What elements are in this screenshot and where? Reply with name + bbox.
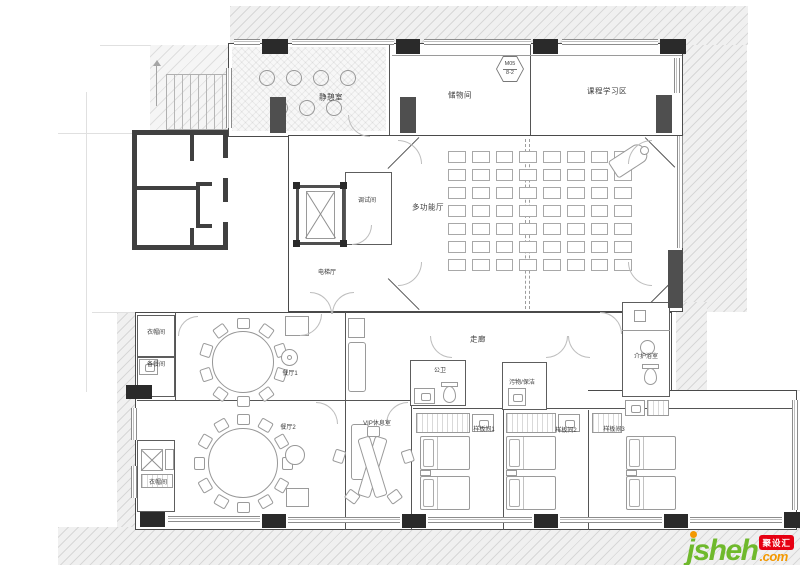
wall	[530, 45, 531, 135]
stair-treads	[166, 74, 230, 130]
annex-door-gap	[222, 202, 229, 222]
wc-sink	[414, 388, 435, 404]
column	[402, 514, 426, 528]
hall-seat	[519, 259, 537, 271]
hall-seat	[496, 259, 514, 271]
care-bath-shelf	[634, 310, 646, 322]
care-bath-counter	[647, 400, 669, 416]
room-label-storage: 储物间	[448, 91, 472, 99]
hall-seat	[472, 223, 490, 235]
room-label-cloak-bottom: 衣帽间	[149, 480, 167, 486]
room-label-care-bath: 介护浴室	[634, 354, 658, 360]
hall-seat	[496, 169, 514, 181]
hall-seat	[519, 151, 537, 163]
stool	[259, 70, 275, 86]
hatch-area-right-mid	[676, 302, 707, 392]
hall-seat	[543, 259, 561, 271]
room-label-cleaning: 污物/保洁	[509, 380, 535, 386]
hall-seat	[614, 223, 632, 235]
wall	[389, 45, 390, 135]
hall-seat	[448, 223, 466, 235]
hall-seat	[591, 151, 609, 163]
column	[262, 514, 286, 528]
mop-sink	[508, 388, 526, 406]
sample1-bed	[420, 436, 470, 470]
hall-seat	[543, 169, 561, 181]
hall-seat	[591, 169, 609, 181]
annex-wall-bracket	[196, 182, 200, 228]
hall-seat	[472, 169, 490, 181]
chair	[237, 318, 250, 329]
wall	[137, 400, 411, 401]
care-bath-divider	[622, 330, 670, 331]
hall-seat	[448, 187, 466, 199]
pier	[270, 97, 286, 133]
logo-tld: .com	[759, 550, 787, 563]
hall-seat	[567, 151, 585, 163]
hall-seat	[472, 241, 490, 253]
door-tag-line2: 8-2	[506, 70, 514, 77]
pier	[656, 95, 672, 133]
room-label-multi-hall: 多功能厅	[412, 203, 444, 211]
annex-wall-stub2	[190, 228, 194, 248]
column	[340, 182, 347, 189]
pier	[400, 97, 416, 133]
room-label-cloak-top: 衣帽间	[147, 330, 165, 336]
stool	[299, 100, 315, 116]
dining1-floor-lamp-dot	[287, 355, 292, 360]
hall-seat	[591, 241, 609, 253]
annex-door-gap	[222, 158, 229, 178]
wall	[503, 410, 504, 530]
wall	[588, 410, 589, 530]
chair	[237, 414, 250, 425]
sample2-counter	[506, 413, 556, 433]
annex-wall	[137, 186, 199, 190]
grid-line	[86, 92, 87, 392]
window	[424, 39, 531, 45]
column	[340, 240, 347, 247]
window	[690, 517, 782, 523]
sample3-bed	[626, 476, 676, 510]
room-label-dining1: 餐厅1	[282, 371, 297, 377]
dining2-cabinet	[286, 488, 309, 507]
hall-seat	[543, 151, 561, 163]
stair-landing-line	[166, 74, 167, 130]
cloak-shelf	[165, 449, 174, 470]
room-label-corridor: 走廊	[470, 335, 486, 343]
inner-wall-line	[392, 55, 682, 56]
room-label-public-wc: 公卫	[434, 368, 446, 374]
hall-seat	[496, 187, 514, 199]
column	[126, 385, 152, 399]
window	[674, 58, 680, 93]
hall-seat	[614, 205, 632, 217]
care-bath-toilet-tank	[642, 364, 659, 369]
stool	[326, 100, 342, 116]
window	[428, 517, 532, 523]
lower-wing-extension	[588, 390, 797, 530]
room-label-sample3: 样板间3	[603, 427, 624, 433]
care-bath-counter-sink	[625, 400, 645, 416]
hall-seat	[448, 241, 466, 253]
hall-seat	[496, 205, 514, 217]
column	[664, 514, 688, 528]
hall-seat	[543, 205, 561, 217]
hall-seat	[496, 223, 514, 235]
logo-dot-icon	[690, 531, 697, 538]
window	[226, 68, 232, 128]
sample3-bed	[626, 436, 676, 470]
wc-toilet-tank	[441, 382, 458, 387]
room-label-pantry: 备餐间	[147, 362, 165, 368]
dining2-floor-lamp	[285, 445, 305, 465]
room-label-sample1: 样板间1	[473, 427, 494, 433]
dining2-table	[208, 428, 278, 498]
site-logo: jsheh 聚设汇 .com	[687, 535, 794, 563]
window	[168, 516, 260, 522]
room-label-vip: VIP休息室	[363, 421, 391, 427]
hall-seat	[567, 169, 585, 181]
hall-seat	[519, 241, 537, 253]
door-tag-line1: M05	[505, 61, 516, 68]
hatch-area-right	[683, 45, 747, 312]
hall-seat	[591, 187, 609, 199]
hall-seat	[448, 205, 466, 217]
window	[288, 517, 400, 523]
hall-seat	[567, 223, 585, 235]
stool	[340, 70, 356, 86]
window	[560, 517, 662, 523]
wall	[411, 400, 412, 530]
dining1-table	[212, 331, 274, 393]
column	[533, 39, 558, 54]
column	[293, 240, 300, 247]
pier	[668, 250, 683, 308]
annex-wall-bracket-bottom	[196, 224, 212, 228]
window	[677, 136, 683, 248]
hall-seat	[519, 205, 537, 217]
chair	[194, 457, 205, 470]
stair-arrow-head	[153, 60, 161, 66]
quiet-room-stools	[252, 70, 362, 116]
room-label-dining2: 餐厅2	[280, 425, 295, 431]
hall-seat	[472, 259, 490, 271]
hall-seat	[614, 187, 632, 199]
hall-seat	[591, 223, 609, 235]
hall-seat	[543, 223, 561, 235]
chair	[237, 396, 250, 407]
hall-seat	[496, 151, 514, 163]
floor-plan-canvas: M05 8-2 静憩室 储物间 课程学习区 多功能厅 调试间 电梯厅 走廊 衣帽…	[0, 0, 800, 565]
hall-seat	[448, 169, 466, 181]
hall-seat	[448, 151, 466, 163]
column	[293, 182, 300, 189]
hall-seat	[567, 187, 585, 199]
logo-badge: 聚设汇	[759, 535, 794, 550]
dining1-sofa	[348, 342, 366, 392]
window	[562, 39, 658, 45]
sample2-nightstand	[506, 470, 517, 476]
cloak-top-box	[137, 315, 175, 357]
sample3-nightstand	[626, 470, 637, 476]
care-bath-sink	[640, 340, 655, 355]
hall-seat	[472, 151, 490, 163]
sample2-bed	[506, 476, 556, 510]
sample2-bed	[506, 436, 556, 470]
hall-seat	[567, 241, 585, 253]
hall-seat	[591, 205, 609, 217]
hall-seat	[472, 205, 490, 217]
room-label-sample2: 样板间2	[555, 428, 576, 434]
hall-seat	[472, 187, 490, 199]
hall-seat	[567, 205, 585, 217]
wall	[175, 312, 176, 400]
annex-wall-stub	[190, 135, 194, 161]
column	[534, 514, 558, 528]
column	[262, 39, 288, 54]
room-label-course-area: 课程学习区	[587, 87, 627, 95]
logo-wordmark: jsheh	[687, 538, 758, 564]
stair-direction-arrow	[156, 62, 157, 106]
chair	[237, 502, 250, 513]
stool	[286, 70, 302, 86]
wall	[413, 408, 797, 409]
hall-seat	[543, 187, 561, 199]
window	[131, 408, 137, 440]
hall-seat	[448, 259, 466, 271]
chair	[367, 426, 380, 437]
wc-toilet	[443, 386, 456, 403]
stool	[313, 70, 329, 86]
sample1-nightstand	[420, 470, 431, 476]
sample1-counter	[416, 413, 470, 433]
hall-seat	[591, 259, 609, 271]
hall-seat	[543, 241, 561, 253]
annex-wall-bracket-top	[196, 182, 212, 186]
window	[131, 466, 137, 498]
column	[660, 39, 686, 54]
column	[140, 512, 165, 527]
hall-seat	[519, 169, 537, 181]
hall-seating-grid	[448, 151, 632, 271]
room-label-quiet-room: 静憩室	[319, 93, 343, 101]
window	[792, 400, 798, 510]
hall-seat	[614, 241, 632, 253]
column	[396, 39, 420, 54]
annex-structure	[132, 130, 228, 250]
hall-seat	[567, 259, 585, 271]
room-label-elevator-hall: 电梯厅	[318, 270, 336, 276]
dining1-side-table	[348, 318, 365, 338]
window	[234, 39, 260, 45]
window	[292, 39, 394, 45]
column	[784, 512, 800, 528]
room-label-debug-room: 调试间	[358, 198, 376, 204]
hall-seat	[519, 187, 537, 199]
hall-seat	[496, 241, 514, 253]
hall-seat	[519, 223, 537, 235]
care-bath-toilet	[644, 368, 657, 385]
sample1-bed	[420, 476, 470, 510]
